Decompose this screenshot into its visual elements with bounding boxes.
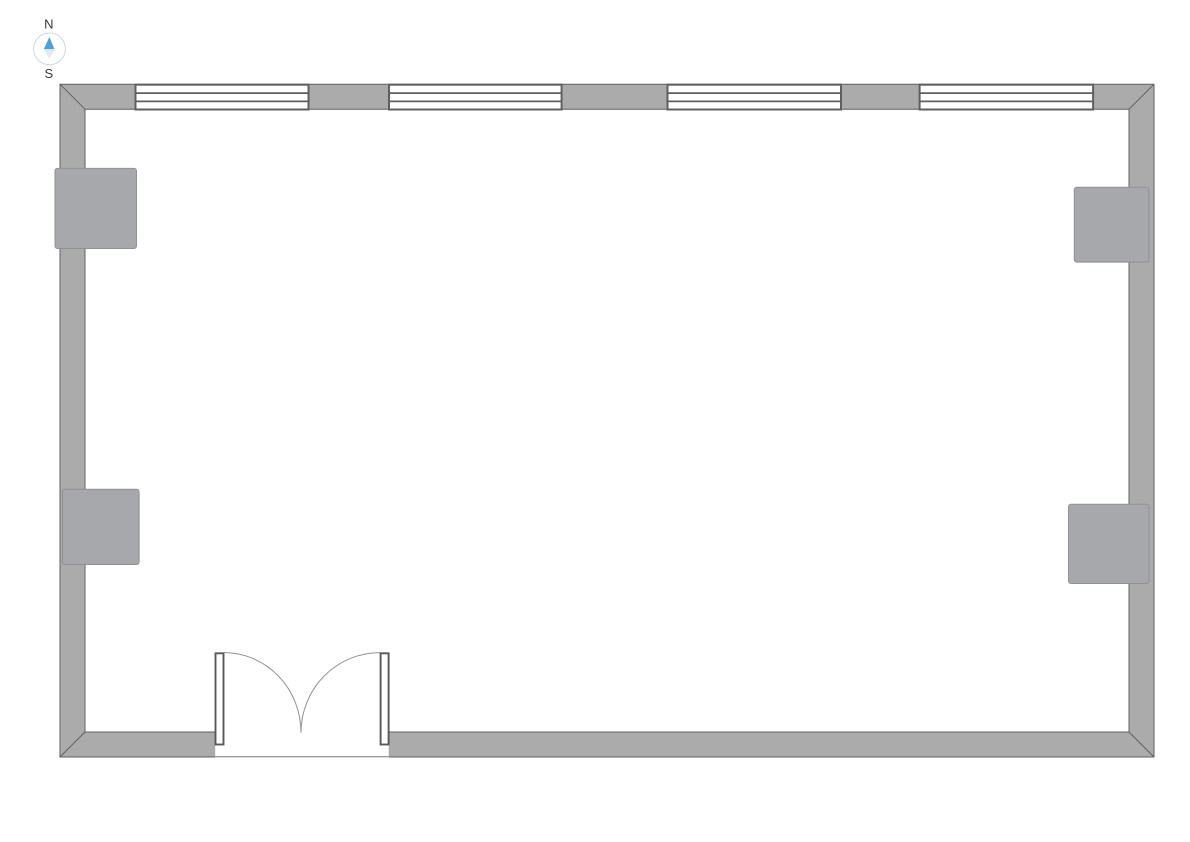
svg-text:N: N: [44, 17, 53, 32]
svg-text:S: S: [44, 66, 53, 81]
